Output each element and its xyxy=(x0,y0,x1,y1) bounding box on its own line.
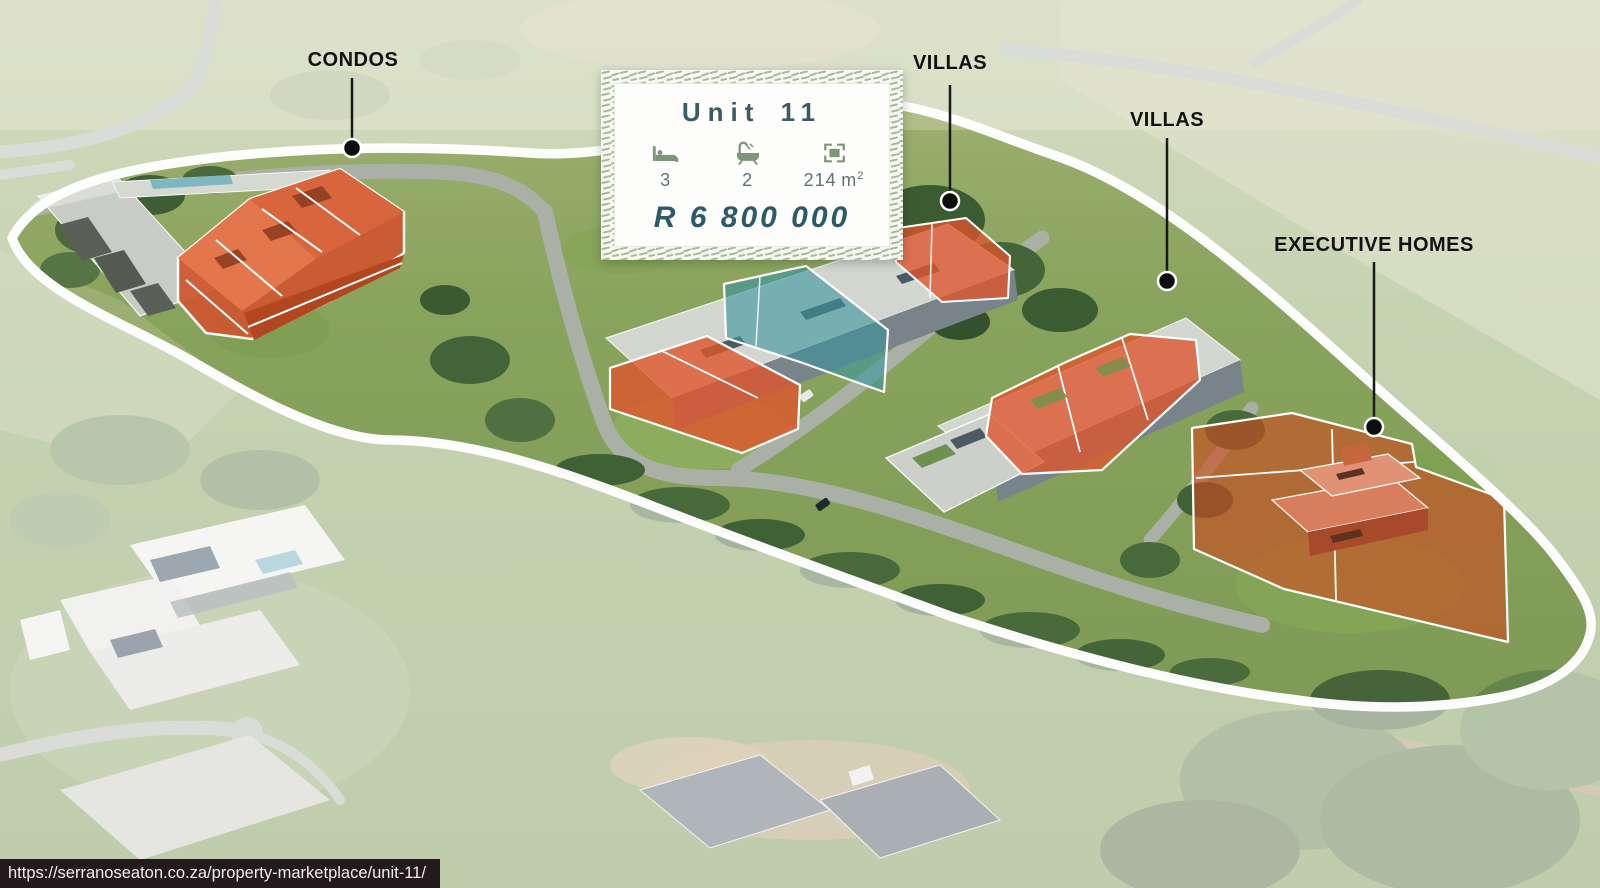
condos-label[interactable]: CONDOS xyxy=(308,49,399,71)
status-url-text: https://serranoseaton.co.za/property-mar… xyxy=(8,864,426,882)
status-bar-url: https://serranoseaton.co.za/property-mar… xyxy=(0,859,440,888)
unit-stats: 3 2 xyxy=(640,141,865,189)
bedrooms-value: 3 xyxy=(660,171,671,189)
unit-card-body: Unit 11 3 xyxy=(614,83,890,247)
property-marketplace-page: CONDOS VILLAS VILLAS EXECUTIVE HOMES xyxy=(0,0,1600,888)
unit-title: Unit 11 xyxy=(682,97,822,128)
unit-price: R 6 800 000 xyxy=(654,201,850,235)
area-value: 214 m2 xyxy=(804,171,865,189)
bed-icon xyxy=(651,141,681,165)
bathrooms-stat: 2 xyxy=(722,141,774,189)
bath-icon xyxy=(733,141,763,165)
executive-homes-label[interactable]: EXECUTIVE HOMES xyxy=(1274,234,1474,256)
bedrooms-stat: 3 xyxy=(640,141,692,189)
villas-lower-label[interactable]: VILLAS xyxy=(1130,109,1204,131)
area-stat: 214 m2 xyxy=(804,141,865,189)
bathrooms-value: 2 xyxy=(742,171,753,189)
floor-area-icon xyxy=(821,141,848,165)
unit-info-card[interactable]: Unit 11 3 xyxy=(601,70,903,260)
villas-upper-label[interactable]: VILLAS xyxy=(913,52,987,74)
